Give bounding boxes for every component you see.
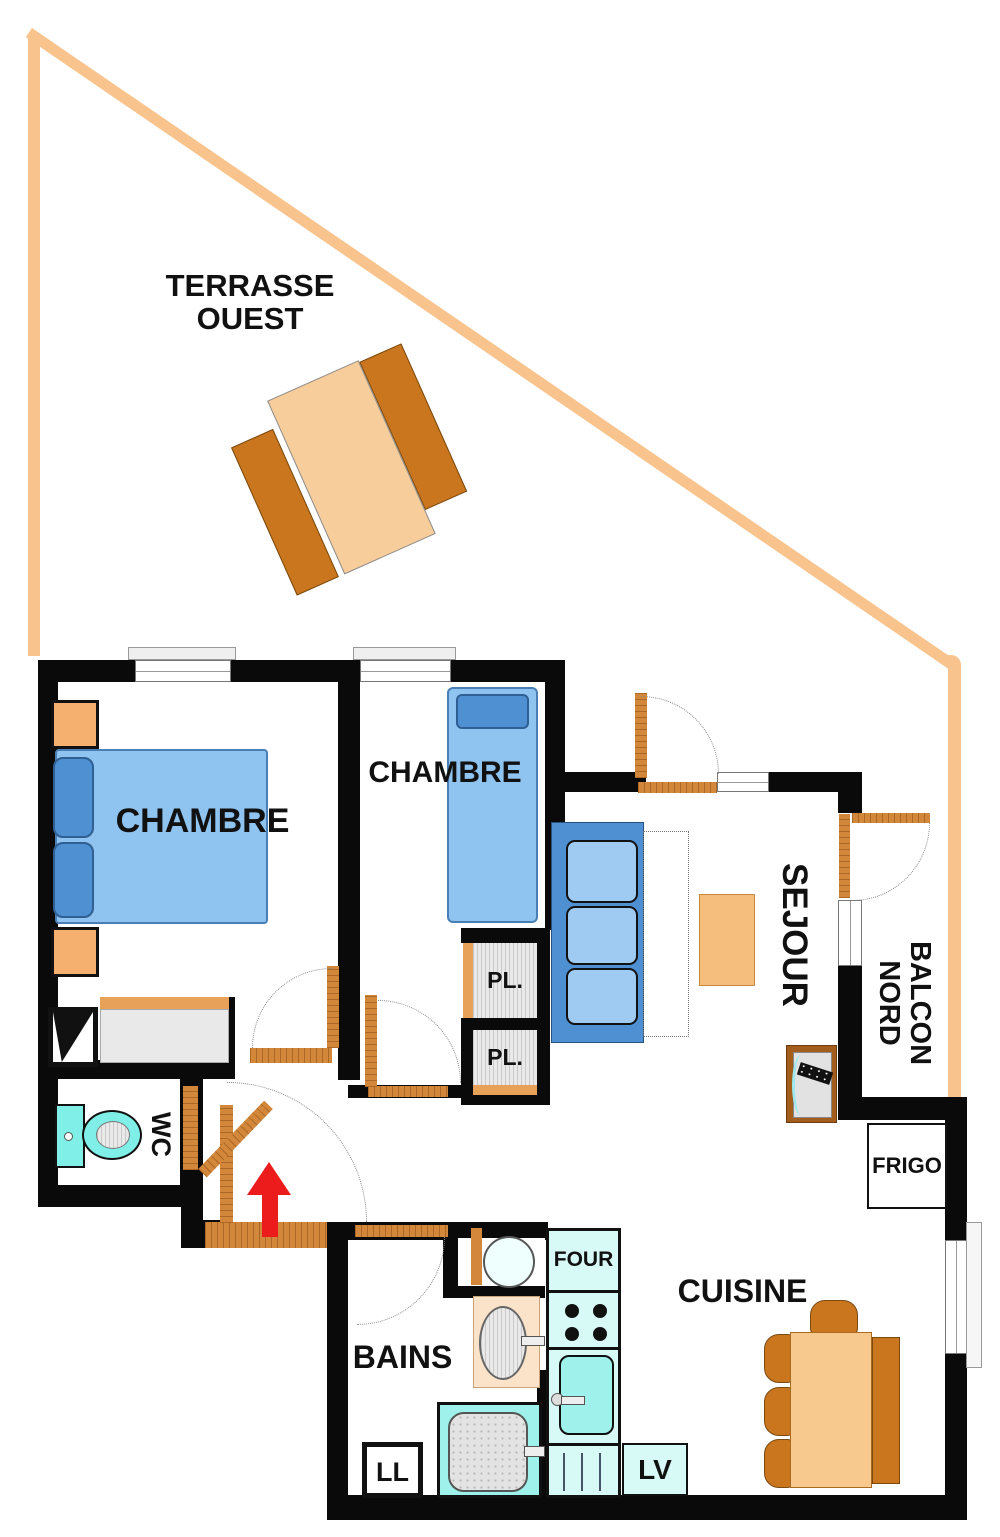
closet1-label: PL.	[473, 958, 537, 1002]
bedroom2-label: CHAMBRE	[355, 753, 535, 793]
corner-symbol-triangle	[53, 1012, 93, 1062]
washing-machine-label: LL	[362, 1452, 423, 1492]
drainer-line	[599, 1453, 601, 1491]
wall	[565, 772, 646, 792]
pillow	[456, 694, 529, 729]
hob-burner	[565, 1327, 579, 1341]
balcony-edge-east	[948, 655, 961, 1097]
wall	[461, 1018, 473, 1105]
window-mullion	[718, 782, 768, 783]
closet1-label-text: PL.	[487, 968, 523, 992]
bath-label: BAINS	[345, 1338, 460, 1378]
shower-tray	[448, 1412, 528, 1492]
closet1-front	[463, 943, 473, 1018]
kitchen-tap-spout	[561, 1396, 585, 1405]
hob-burner	[593, 1304, 607, 1318]
door-sill-living	[638, 782, 717, 793]
wall	[768, 772, 862, 792]
oven-label-text: FOUR	[554, 1249, 614, 1271]
dining-chair	[764, 1387, 793, 1436]
round-basin	[483, 1236, 535, 1288]
kitchen-label-text: CUISINE	[678, 1275, 808, 1309]
dining-chair	[764, 1334, 793, 1383]
corner-symbol-box	[48, 1007, 98, 1067]
door-arc-bedroom1	[252, 968, 332, 1048]
dresser-top	[100, 997, 229, 1009]
drainer-line	[581, 1453, 583, 1491]
balcony-label-line1: BALCON	[904, 940, 935, 1064]
wc-label: WC	[138, 1092, 182, 1176]
bedroom2-label-text: CHAMBRE	[368, 757, 521, 789]
door-sill-bedroom1	[250, 1048, 332, 1063]
fridge-label: FRIGO	[867, 1144, 947, 1188]
window-living	[717, 772, 769, 792]
balcony-label-line2: NORD	[873, 940, 904, 1064]
kitchen-counter: FOUR	[546, 1228, 621, 1498]
bath-label-text: BAINS	[353, 1341, 453, 1375]
toilet-cistern	[55, 1104, 85, 1168]
dishwasher-label-text: LV	[638, 1455, 672, 1484]
toilet-bowl-inner	[96, 1121, 130, 1149]
tv-unit	[786, 1045, 837, 1123]
door-arc-bedroom2	[378, 1000, 461, 1083]
coffee-table	[699, 894, 755, 986]
door-arc-bathroom	[357, 1237, 445, 1325]
sofa-cushion	[566, 840, 638, 903]
kitchen-sink	[559, 1355, 614, 1435]
toilet-bowl	[82, 1110, 142, 1160]
door-leaf-wc	[183, 1086, 198, 1170]
nightstand	[51, 927, 99, 977]
terrace-label: TERRASSE OUEST	[130, 262, 370, 344]
pillow	[53, 842, 94, 918]
window-mullion	[850, 901, 851, 965]
door-leaf-balcony-jamb	[839, 814, 850, 898]
window-sill	[128, 647, 236, 660]
terrace-label-line1: TERRASSE	[166, 270, 335, 303]
window-mullion	[956, 1241, 957, 1353]
closet2-label: PL.	[473, 1035, 537, 1079]
dishwasher-label: LV	[622, 1450, 688, 1490]
wall	[38, 1185, 203, 1207]
wall	[327, 1495, 967, 1520]
window-sill	[353, 647, 456, 660]
window-bedroom2	[360, 660, 451, 682]
oven-label: FOUR	[549, 1245, 618, 1275]
dining-table	[790, 1332, 872, 1488]
window-mullion	[136, 671, 230, 672]
door-arc-living	[641, 696, 719, 774]
closet2-front	[473, 1085, 537, 1095]
bedroom1-label: CHAMBRE	[85, 799, 320, 845]
wc-label-text: WC	[145, 1112, 176, 1157]
sofa-cushion	[566, 968, 638, 1025]
door-sill-bedroom2	[368, 1086, 448, 1097]
wall	[838, 1097, 967, 1120]
entry-arrow-stem	[262, 1193, 278, 1237]
dining-bench	[872, 1337, 900, 1484]
dining-chair	[810, 1300, 858, 1334]
window-kitchen	[945, 1240, 967, 1354]
washing-machine-label-text: LL	[376, 1458, 409, 1486]
terrace-edge-diagonal	[26, 28, 955, 669]
entry-door-arc	[227, 1082, 367, 1222]
counter-divider	[549, 1347, 618, 1350]
nightstand	[51, 700, 99, 749]
basin-niche-front	[471, 1228, 482, 1285]
balcony-label-text: BALCON NORD	[873, 940, 935, 1064]
door-arc-balcony	[852, 823, 930, 901]
fridge-label-text: FRIGO	[872, 1154, 942, 1177]
wall	[338, 660, 360, 1080]
floor-plan: TERRASSE OUEST	[0, 0, 1000, 1537]
door-leaf-bathroom	[355, 1225, 448, 1237]
washbasin-tap	[521, 1336, 545, 1346]
terrace-furniture-group	[217, 333, 488, 604]
counter-divider	[549, 1290, 618, 1293]
shower-handle	[524, 1446, 545, 1457]
sofa-bed-outline	[643, 831, 689, 1037]
sofa-cushion	[566, 906, 638, 965]
wall	[461, 1018, 550, 1030]
hob-burner	[565, 1304, 579, 1318]
kitchen-label: CUISINE	[655, 1272, 830, 1312]
wall	[537, 928, 550, 1105]
bedroom1-label-text: CHAMBRE	[116, 804, 290, 840]
terrace-label-line2: OUEST	[197, 303, 304, 336]
toilet-button	[64, 1132, 73, 1141]
window-mullion	[361, 671, 450, 672]
door-leaf-bedroom2	[365, 995, 377, 1087]
door-leaf-balcony	[852, 813, 930, 823]
wall	[38, 660, 565, 682]
wall	[838, 965, 862, 1097]
terrace-edge-west	[28, 36, 40, 656]
closet2-label-text: PL.	[487, 1045, 523, 1069]
dining-chair	[764, 1439, 793, 1488]
dresser	[100, 1009, 229, 1063]
drainer-line	[563, 1453, 565, 1491]
hob-burner	[593, 1327, 607, 1341]
window-bedroom1	[135, 660, 231, 682]
window-sill	[966, 1222, 982, 1368]
entry-arrow-head	[247, 1162, 291, 1195]
window-balcony	[838, 900, 862, 966]
balcony-label: BALCON NORD	[862, 925, 946, 1080]
washbasin-bowl	[479, 1306, 527, 1380]
living-label-text: SEJOUR	[774, 863, 814, 1007]
living-label: SEJOUR	[755, 862, 833, 1007]
wall	[461, 928, 550, 943]
counter-divider	[549, 1443, 618, 1446]
